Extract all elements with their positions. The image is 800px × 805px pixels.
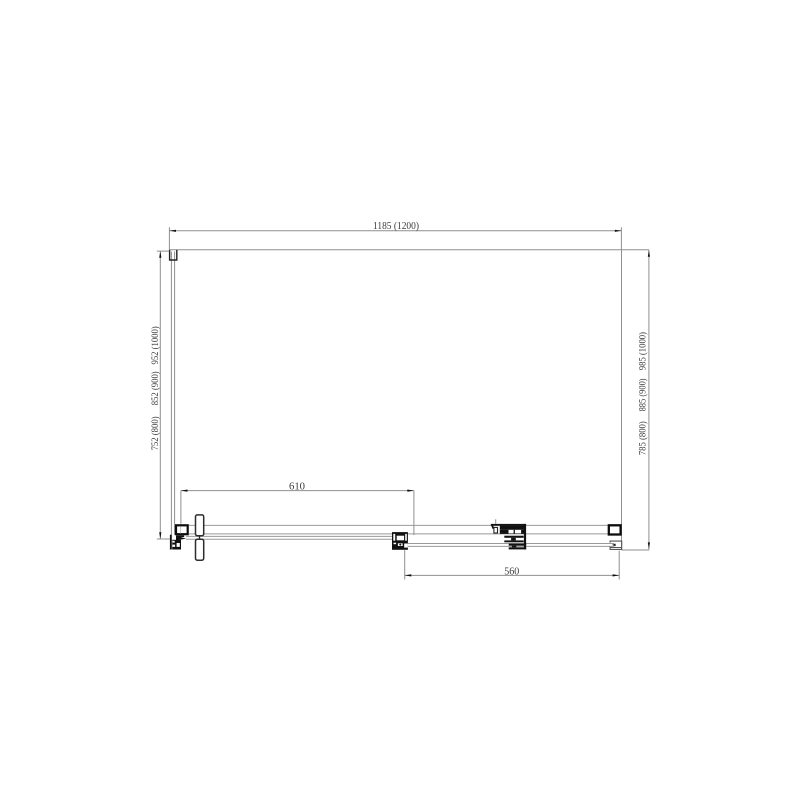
svg-text:785 (800): 785 (800): [637, 421, 648, 455]
svg-text:952 (1000): 952 (1000): [150, 326, 161, 364]
svg-text:885 (900): 885 (900): [637, 378, 648, 411]
svg-text:1185 (1200): 1185 (1200): [373, 221, 419, 232]
svg-text:752 (800): 752 (800): [150, 416, 161, 450]
svg-text:560: 560: [504, 566, 519, 578]
svg-text:610: 610: [289, 480, 305, 492]
svg-text:852 (900): 852 (900): [150, 371, 161, 405]
svg-text:985 (1000): 985 (1000): [637, 332, 648, 370]
